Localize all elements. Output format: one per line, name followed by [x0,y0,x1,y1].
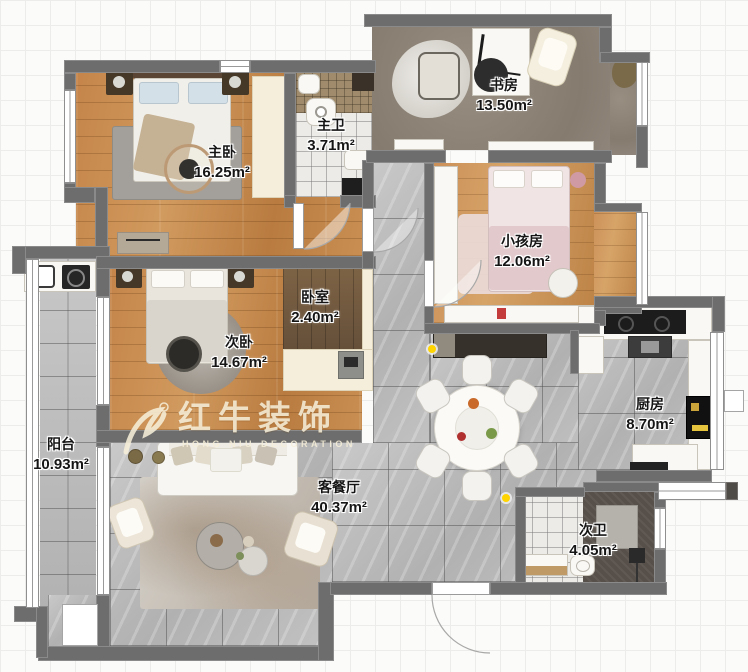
kitchen-window [710,332,724,470]
window-sill-cap [726,482,738,500]
wall [596,470,712,482]
window [220,60,250,73]
label-balcony: 阳台 10.93m² [33,434,89,476]
floor-lamp-pole [636,560,638,584]
window-protrusion [724,390,744,412]
wall [594,296,724,308]
bedroom2-chair[interactable] [166,336,202,372]
watermark-bull-logo [118,400,170,458]
wall [284,73,296,197]
wall [515,487,585,497]
wall [36,606,48,658]
bay-window [636,212,648,305]
wall [12,246,26,274]
kids-wardrobe[interactable] [434,166,458,304]
flower-vase [243,536,254,547]
label-study: 书房 13.50m² [476,75,532,117]
washing-machine[interactable] [62,265,90,289]
wall [38,646,334,661]
refrigerator[interactable] [686,396,713,439]
wall [366,150,446,163]
wall [64,187,95,203]
bedroom2-lamp-left [122,271,133,282]
label-second-bath: 次卫 4.05m² [569,520,617,562]
window [654,508,666,549]
label-kids-room: 小孩房 12.06m² [494,231,550,273]
hall-cabinet[interactable] [117,232,169,254]
bedroom2-pillow-left [151,270,185,288]
dining-dish-3 [457,432,466,441]
kids-pillow-left [493,170,525,188]
dining-chair-n[interactable] [462,355,492,385]
coffee-table-large[interactable] [196,522,244,570]
kitchen-counter-left [578,336,604,374]
wall [424,163,434,262]
label-kitchen: 厨房 8.70m² [626,394,674,436]
range-hood [628,336,672,358]
kids-dresser[interactable] [444,305,594,323]
flower-greens [236,552,244,560]
point-marker-1[interactable] [427,344,437,354]
master-wardrobe[interactable] [252,76,286,198]
closet-desk[interactable] [338,351,364,379]
bedroom2-pillow-right [190,270,224,288]
kids-pillow-right [531,170,563,188]
wall [362,250,374,269]
study-lounge-chair[interactable] [418,52,460,100]
wall [488,150,612,163]
wall [362,160,374,210]
watermark-subtitle: HONG NIU DECORATION [178,439,356,449]
window [636,62,648,126]
bedroom2-lamp-right [234,271,245,282]
bath2-vanity[interactable] [522,554,568,576]
kids-bay-floor [594,205,637,310]
kids-dresser-decor [497,308,506,319]
floor-plan-canvas: 红牛装饰 HONG NIU DECORATION 主卧 16.25m² 主卫 3… [0,0,748,672]
window [97,447,110,595]
watermark-brand: 红牛装饰 [178,400,356,436]
toilet[interactable] [298,74,320,94]
wall [515,487,526,593]
point-marker-2[interactable] [501,493,511,503]
dining-chair-s[interactable] [462,471,492,501]
entry-door[interactable] [432,582,490,595]
kids-pouf[interactable] [548,268,578,298]
wall [583,482,667,492]
study-shelf [394,139,444,150]
kids-bedside-stool [570,172,586,188]
label-inner-bedroom: 卧室 2.40m² [291,287,339,329]
label-master-bath: 主卫 3.71m² [307,115,355,157]
window [97,297,110,405]
window-sill [658,482,726,500]
label-second-bedroom: 次卧 14.67m² [211,332,267,374]
closet-door[interactable] [362,208,374,252]
dining-dish-2 [486,428,497,439]
wall [490,582,667,595]
wall [250,60,376,73]
wall [64,73,76,90]
dining-dish-1 [468,398,479,409]
master-pillow-left [139,82,179,104]
wall [570,330,579,374]
bath-cabinet [352,73,374,91]
master-lamp-right [229,76,241,88]
wall [594,203,642,212]
kids-room-door[interactable] [424,260,434,307]
wall [636,126,648,168]
label-master-bedroom: 主卧 16.25m² [194,142,250,184]
wall [712,296,725,332]
master-bath-door[interactable] [293,203,304,249]
master-lamp-left [113,76,125,88]
watermark: 红牛装饰 HONG NIU DECORATION [118,400,356,458]
floor-lamp[interactable] [629,548,645,563]
wall [330,582,432,595]
wall [96,256,376,269]
wall [96,595,110,648]
tv-console[interactable] [433,333,547,358]
coffee-table-small[interactable] [238,546,268,576]
window [64,90,76,183]
coffee-table-tray [210,534,223,547]
label-living-dining: 客餐厅 40.37m² [311,477,367,519]
wall [64,60,220,73]
balcony-opening [62,604,98,646]
wall [364,14,612,27]
